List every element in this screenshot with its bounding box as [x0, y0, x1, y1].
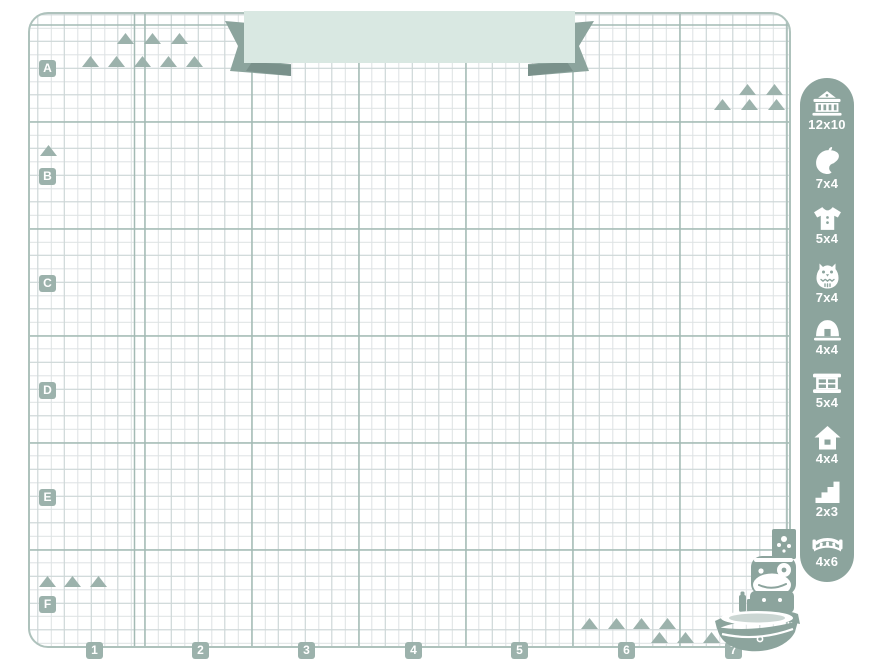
palette-item-stairs[interactable]: 2x3	[815, 481, 840, 519]
bridge-icon	[812, 534, 843, 553]
col-label-5: 5	[511, 642, 528, 659]
boat-character-mascot	[710, 525, 805, 653]
house-icon	[814, 426, 841, 450]
building-palette-sidebar: 12x10 7x4 5x4	[800, 78, 854, 582]
palette-size-label: 5x4	[816, 395, 839, 410]
grid-sheet[interactable]	[28, 12, 791, 648]
town-hall-icon	[812, 91, 842, 116]
palette-size-label: 7x4	[816, 176, 839, 191]
palette-item-house[interactable]: 4x4	[814, 426, 841, 466]
banner-title-text	[250, 18, 570, 56]
leaf-icon	[814, 147, 841, 175]
row-label-b: B	[39, 168, 56, 185]
row-label-f: F	[39, 596, 56, 613]
palette-item-bridge[interactable]: 4x6	[812, 534, 843, 569]
col-label-3: 3	[298, 642, 315, 659]
island-planner-board: A B C D E F 1 2 3 4 5 6 7	[0, 0, 880, 660]
palette-item-shirt[interactable]: 5x4	[813, 207, 842, 246]
palette-size-label: 4x6	[816, 554, 839, 569]
palette-size-label: 7x4	[816, 290, 839, 305]
tent-icon	[814, 320, 841, 341]
palette-item-town-hall[interactable]: 12x10	[808, 91, 846, 132]
shirt-icon	[813, 207, 842, 230]
col-label-2: 2	[192, 642, 209, 659]
palette-size-label: 2x3	[816, 504, 839, 519]
palette-item-tent[interactable]: 4x4	[814, 320, 841, 357]
col-label-1: 1	[86, 642, 103, 659]
row-label-d: D	[39, 382, 56, 399]
row-label-a: A	[39, 60, 56, 77]
palette-item-shop-window[interactable]: 5x4	[813, 372, 841, 410]
row-label-e: E	[39, 489, 56, 506]
row-label-c: C	[39, 275, 56, 292]
palette-size-label: 4x4	[816, 342, 839, 357]
shop-window-icon	[813, 372, 841, 394]
palette-size-label: 5x4	[816, 231, 839, 246]
palette-item-owl[interactable]: 7x4	[815, 261, 840, 305]
palette-item-leaf[interactable]: 7x4	[814, 147, 841, 191]
stairs-icon	[815, 481, 840, 503]
palette-size-label: 4x4	[816, 451, 839, 466]
owl-icon	[815, 261, 840, 289]
col-label-4: 4	[405, 642, 422, 659]
col-label-6: 6	[618, 642, 635, 659]
palette-size-label: 12x10	[808, 117, 846, 132]
